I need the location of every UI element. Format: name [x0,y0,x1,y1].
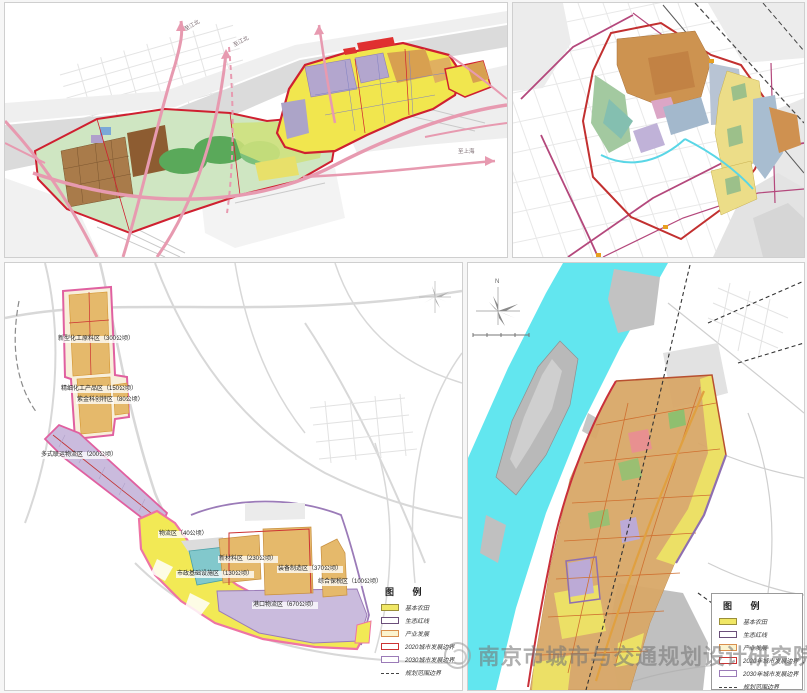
industry-swatch [381,630,399,637]
block-grid [708,283,788,359]
legend-item-ecological: 生态红线 [381,616,454,624]
legend-item-farmland: 基本农田 [719,617,795,625]
planning-scope-dash [381,673,399,674]
zone-label: 市政基础设施区（130公顷） [176,571,254,578]
legend-item-2020-boundary: 2020城市发展边界 [381,642,454,650]
planning-maps-sheet: 至江北 至江北 至上海 [0,0,807,693]
legend-label: 2020城市发展边界 [405,642,454,651]
legend-item-industry: 产业发展 [719,643,795,651]
boundary-2020-swatch [719,657,737,664]
ecological-swatch [381,617,399,624]
legend-item-2020-boundary: 2020年城市发展边界 [719,656,795,664]
zone-label: 装备制造区（370公顷） [277,566,343,573]
legend-label: 基本农田 [743,617,767,626]
zone-label: 港口物流区（670公顷） [252,602,318,609]
panel-top-right-district-plan [512,2,805,258]
coastal-cluster [139,502,371,650]
legend-label: 2020年城市发展边界 [743,656,798,665]
legend-item-2030-boundary: 2030城市发展边界 [381,655,454,663]
planning-boundary-dashed [15,301,37,413]
district-plan-map-art [513,3,804,257]
scale-bar [473,333,529,337]
legend-label: 2030年城市发展边界 [743,669,798,678]
boundary-2030-swatch [719,670,737,677]
panel-top-left-corridor-plan: 至江北 至江北 至上海 [4,2,508,258]
legend-label: 生态红线 [743,630,767,639]
zone-label: 物流区（40公顷） [158,531,209,538]
legend-label: 基本农田 [405,603,429,612]
ecological-swatch [719,631,737,638]
compass-rose: N [476,279,520,326]
boundary-2020-swatch [381,643,399,650]
panel-bottom-left-industry-zoning: 新型化工原料区（300公顷） 精细化工产品区（150公顷） 紫金科创特区（80公… [4,262,463,691]
chemical-cluster [63,287,129,439]
zone-label: 新型化工原料区（300公顷） [57,336,135,343]
industry-swatch [719,644,737,651]
legend-label: 规划范围边界 [743,682,779,691]
legend-item-ecological: 生态红线 [719,630,795,638]
farmland-swatch [719,618,737,625]
legend-item-2030-boundary: 2030年城市发展边界 [719,669,795,677]
legend: 图 例 基本农田 生态红线 产业发展 2020年城市发展边界 2030年城市发展… [711,593,803,690]
legend-label: 规划范围边界 [405,668,441,677]
zone-label: 多式联运物流区（200公顷） [40,452,118,459]
legend: 图 例 基本农田 生态红线 产业发展 2020城市发展边界 2030城市发展边界 [381,585,454,681]
svg-text:N: N [495,279,499,285]
legend-label: 产业发展 [743,643,767,652]
zone-label: 新材料区（230公顷） [218,556,278,563]
legend-label: 产业发展 [405,629,429,638]
corridor-plan-map-art [5,3,507,257]
farmland-swatch [381,604,399,611]
compass-rose [419,281,451,313]
road-label-to-shanghai: 至上海 [458,149,475,155]
boundary-2030-swatch [381,656,399,663]
legend-label: 生态红线 [405,616,429,625]
panel-bottom-right-boundary-map: N [467,262,805,691]
legend-item-planning-scope: 规划范围边界 [381,668,454,676]
planning-scope-dash [719,687,737,688]
zone-label: 精细化工产品区（150公顷） [60,386,138,393]
zone-label: 综合保税区（100公顷） [317,579,383,586]
block-grid [310,394,417,463]
legend-label: 2030城市发展边界 [405,655,454,664]
legend-title: 图 例 [723,599,795,612]
legend-item-industry: 产业发展 [381,629,454,637]
legend-title: 图 例 [385,585,454,598]
legend-item-farmland: 基本农田 [381,603,454,611]
zone-label: 紫金科创特区（80公顷） [76,397,145,404]
legend-item-planning-scope: 规划范围边界 [719,682,795,690]
